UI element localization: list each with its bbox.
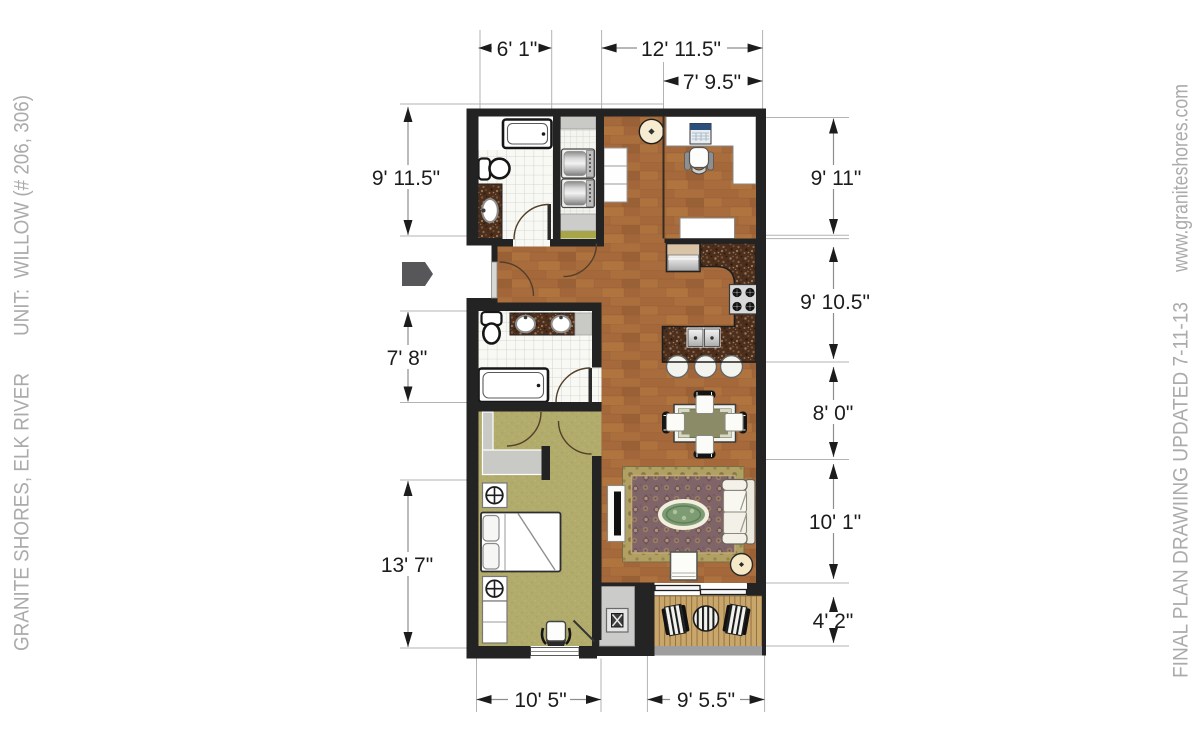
- svg-text:FINAL PLAN DRAWIING UPDATED 7-: FINAL PLAN DRAWIING UPDATED 7-11-13: [1169, 302, 1193, 678]
- svg-text:9' 11": 9' 11": [811, 167, 862, 190]
- svg-text:9' 10.5": 9' 10.5": [800, 291, 870, 314]
- svg-text:7' 9.5": 7' 9.5": [683, 71, 741, 94]
- svg-text:9' 5.5": 9' 5.5": [677, 689, 735, 712]
- svg-text:10' 5": 10' 5": [514, 689, 566, 712]
- svg-text:10' 1": 10' 1": [809, 511, 861, 534]
- svg-text:9' 11.5": 9' 11.5": [372, 167, 440, 190]
- svg-text:12' 11.5": 12' 11.5": [641, 38, 721, 61]
- svg-text:8' 0": 8' 0": [813, 402, 854, 425]
- svg-text:13' 7": 13' 7": [381, 554, 433, 577]
- svg-text:UNIT: WILLOW (# 206, 306): UNIT: WILLOW (# 206, 306): [10, 95, 34, 336]
- svg-text:6' 1": 6' 1": [497, 38, 538, 61]
- svg-text:www.graniteshores.com: www.graniteshores.com: [1169, 84, 1193, 273]
- svg-text:7' 8": 7' 8": [387, 347, 428, 370]
- svg-text:GRANITE SHORES, ELK RIVER: GRANITE SHORES, ELK RIVER: [10, 373, 34, 651]
